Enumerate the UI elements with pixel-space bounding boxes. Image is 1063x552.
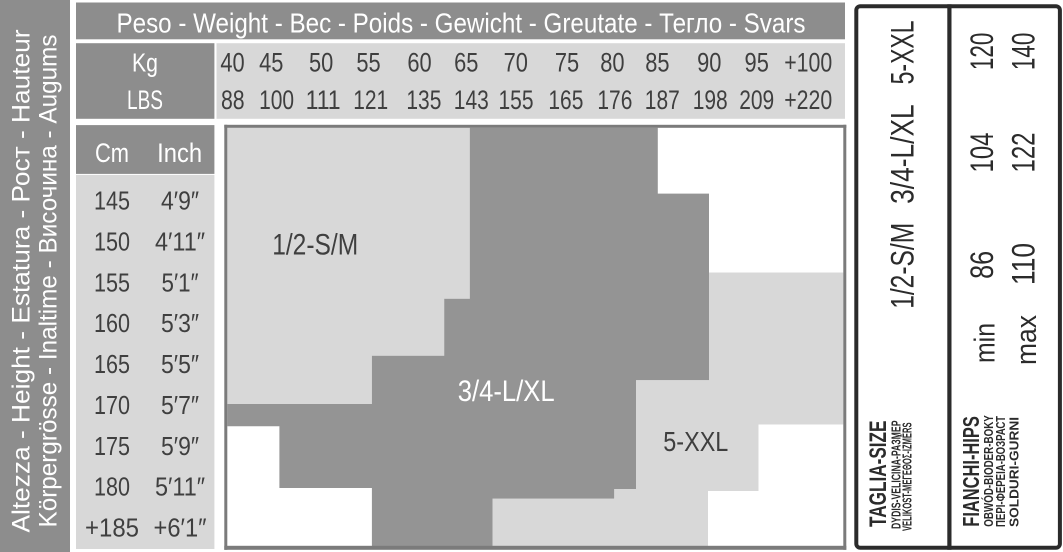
- svg-text:SOLDURI-GURNI: SOLDURI-GURNI: [1006, 417, 1021, 527]
- svg-text:Körpergrösse - Inaltime - Висо: Körpergrösse - Inaltime - Височина - Aug…: [35, 35, 63, 528]
- svg-text:143: 143: [454, 85, 489, 115]
- svg-text:121: 121: [353, 85, 388, 115]
- svg-text:120: 120: [964, 33, 1000, 71]
- svg-text:5′5″: 5′5″: [161, 349, 199, 379]
- svg-text:110: 110: [1005, 243, 1041, 285]
- svg-text:176: 176: [597, 85, 632, 115]
- svg-text:5-XXL: 5-XXL: [663, 426, 728, 457]
- svg-text:+6′1″: +6′1″: [154, 513, 207, 543]
- svg-text:155: 155: [499, 85, 534, 115]
- svg-text:175: 175: [94, 431, 130, 461]
- svg-text:Peso - Weight - Вес - Poids -: Peso - Weight - Вес - Poids - Gewicht - …: [117, 8, 806, 39]
- svg-text:50: 50: [309, 48, 333, 78]
- svg-text:90: 90: [697, 48, 721, 78]
- svg-text:122: 122: [1005, 133, 1041, 173]
- svg-text:3/4-L/XL: 3/4-L/XL: [885, 104, 921, 204]
- svg-text:+185: +185: [85, 513, 139, 543]
- svg-text:160: 160: [94, 308, 130, 338]
- svg-text:VELIKOST-ΜΕΓΕΘΟΣ-IZMĒRS: VELIKOST-ΜΕΓΕΘΟΣ-IZMĒRS: [899, 422, 914, 531]
- svg-text:LBS: LBS: [127, 85, 163, 115]
- svg-text:170: 170: [94, 390, 130, 420]
- svg-text:+100: +100: [784, 48, 832, 78]
- svg-text:88: 88: [221, 85, 245, 115]
- svg-text:198: 198: [693, 85, 728, 115]
- svg-text:Cm: Cm: [95, 138, 129, 168]
- svg-text:60: 60: [407, 48, 431, 78]
- svg-text:180: 180: [94, 472, 130, 502]
- svg-text:max: max: [1011, 315, 1043, 365]
- svg-text:3/4-L/XL: 3/4-L/XL: [458, 375, 555, 408]
- svg-text:165: 165: [94, 349, 130, 379]
- svg-text:1/2-S/M: 1/2-S/M: [272, 229, 358, 262]
- svg-text:65: 65: [454, 48, 478, 78]
- svg-text:Inch: Inch: [157, 138, 202, 168]
- svg-text:135: 135: [406, 85, 441, 115]
- svg-text:100: 100: [259, 85, 294, 115]
- svg-text:70: 70: [504, 48, 528, 78]
- svg-text:165: 165: [548, 85, 583, 115]
- svg-text:145: 145: [94, 186, 130, 216]
- svg-text:209: 209: [739, 85, 774, 115]
- svg-text:104: 104: [964, 133, 1000, 173]
- svg-text:1/2-S/M: 1/2-S/M: [885, 223, 921, 309]
- svg-text:45: 45: [259, 48, 283, 78]
- svg-text:140: 140: [1005, 33, 1041, 71]
- svg-text:150: 150: [94, 226, 130, 256]
- svg-text:Altezza - Height - Estatura -: Altezza - Height - Estatura - Рост - Hau…: [8, 30, 36, 533]
- svg-text:55: 55: [356, 48, 380, 78]
- svg-text:Kg: Kg: [132, 47, 158, 77]
- svg-text:5-XXL: 5-XXL: [885, 20, 921, 84]
- svg-text:86: 86: [964, 251, 1000, 279]
- svg-text:40: 40: [220, 48, 244, 78]
- svg-text:4′11″: 4′11″: [155, 226, 205, 256]
- svg-text:min: min: [969, 323, 1001, 363]
- svg-text:75: 75: [555, 48, 579, 78]
- svg-text:187: 187: [645, 85, 680, 115]
- svg-text:4′9″: 4′9″: [161, 186, 199, 216]
- svg-text:80: 80: [600, 48, 624, 78]
- svg-text:111: 111: [306, 85, 341, 115]
- svg-text:+220: +220: [784, 85, 832, 115]
- svg-text:95: 95: [745, 48, 769, 78]
- svg-text:5′1″: 5′1″: [162, 267, 199, 297]
- svg-text:5′11″: 5′11″: [155, 472, 205, 502]
- svg-text:85: 85: [645, 48, 669, 78]
- svg-text:5′7″: 5′7″: [161, 390, 199, 420]
- svg-text:155: 155: [94, 267, 130, 297]
- svg-text:5′9″: 5′9″: [161, 431, 199, 461]
- svg-text:5′3″: 5′3″: [161, 308, 199, 338]
